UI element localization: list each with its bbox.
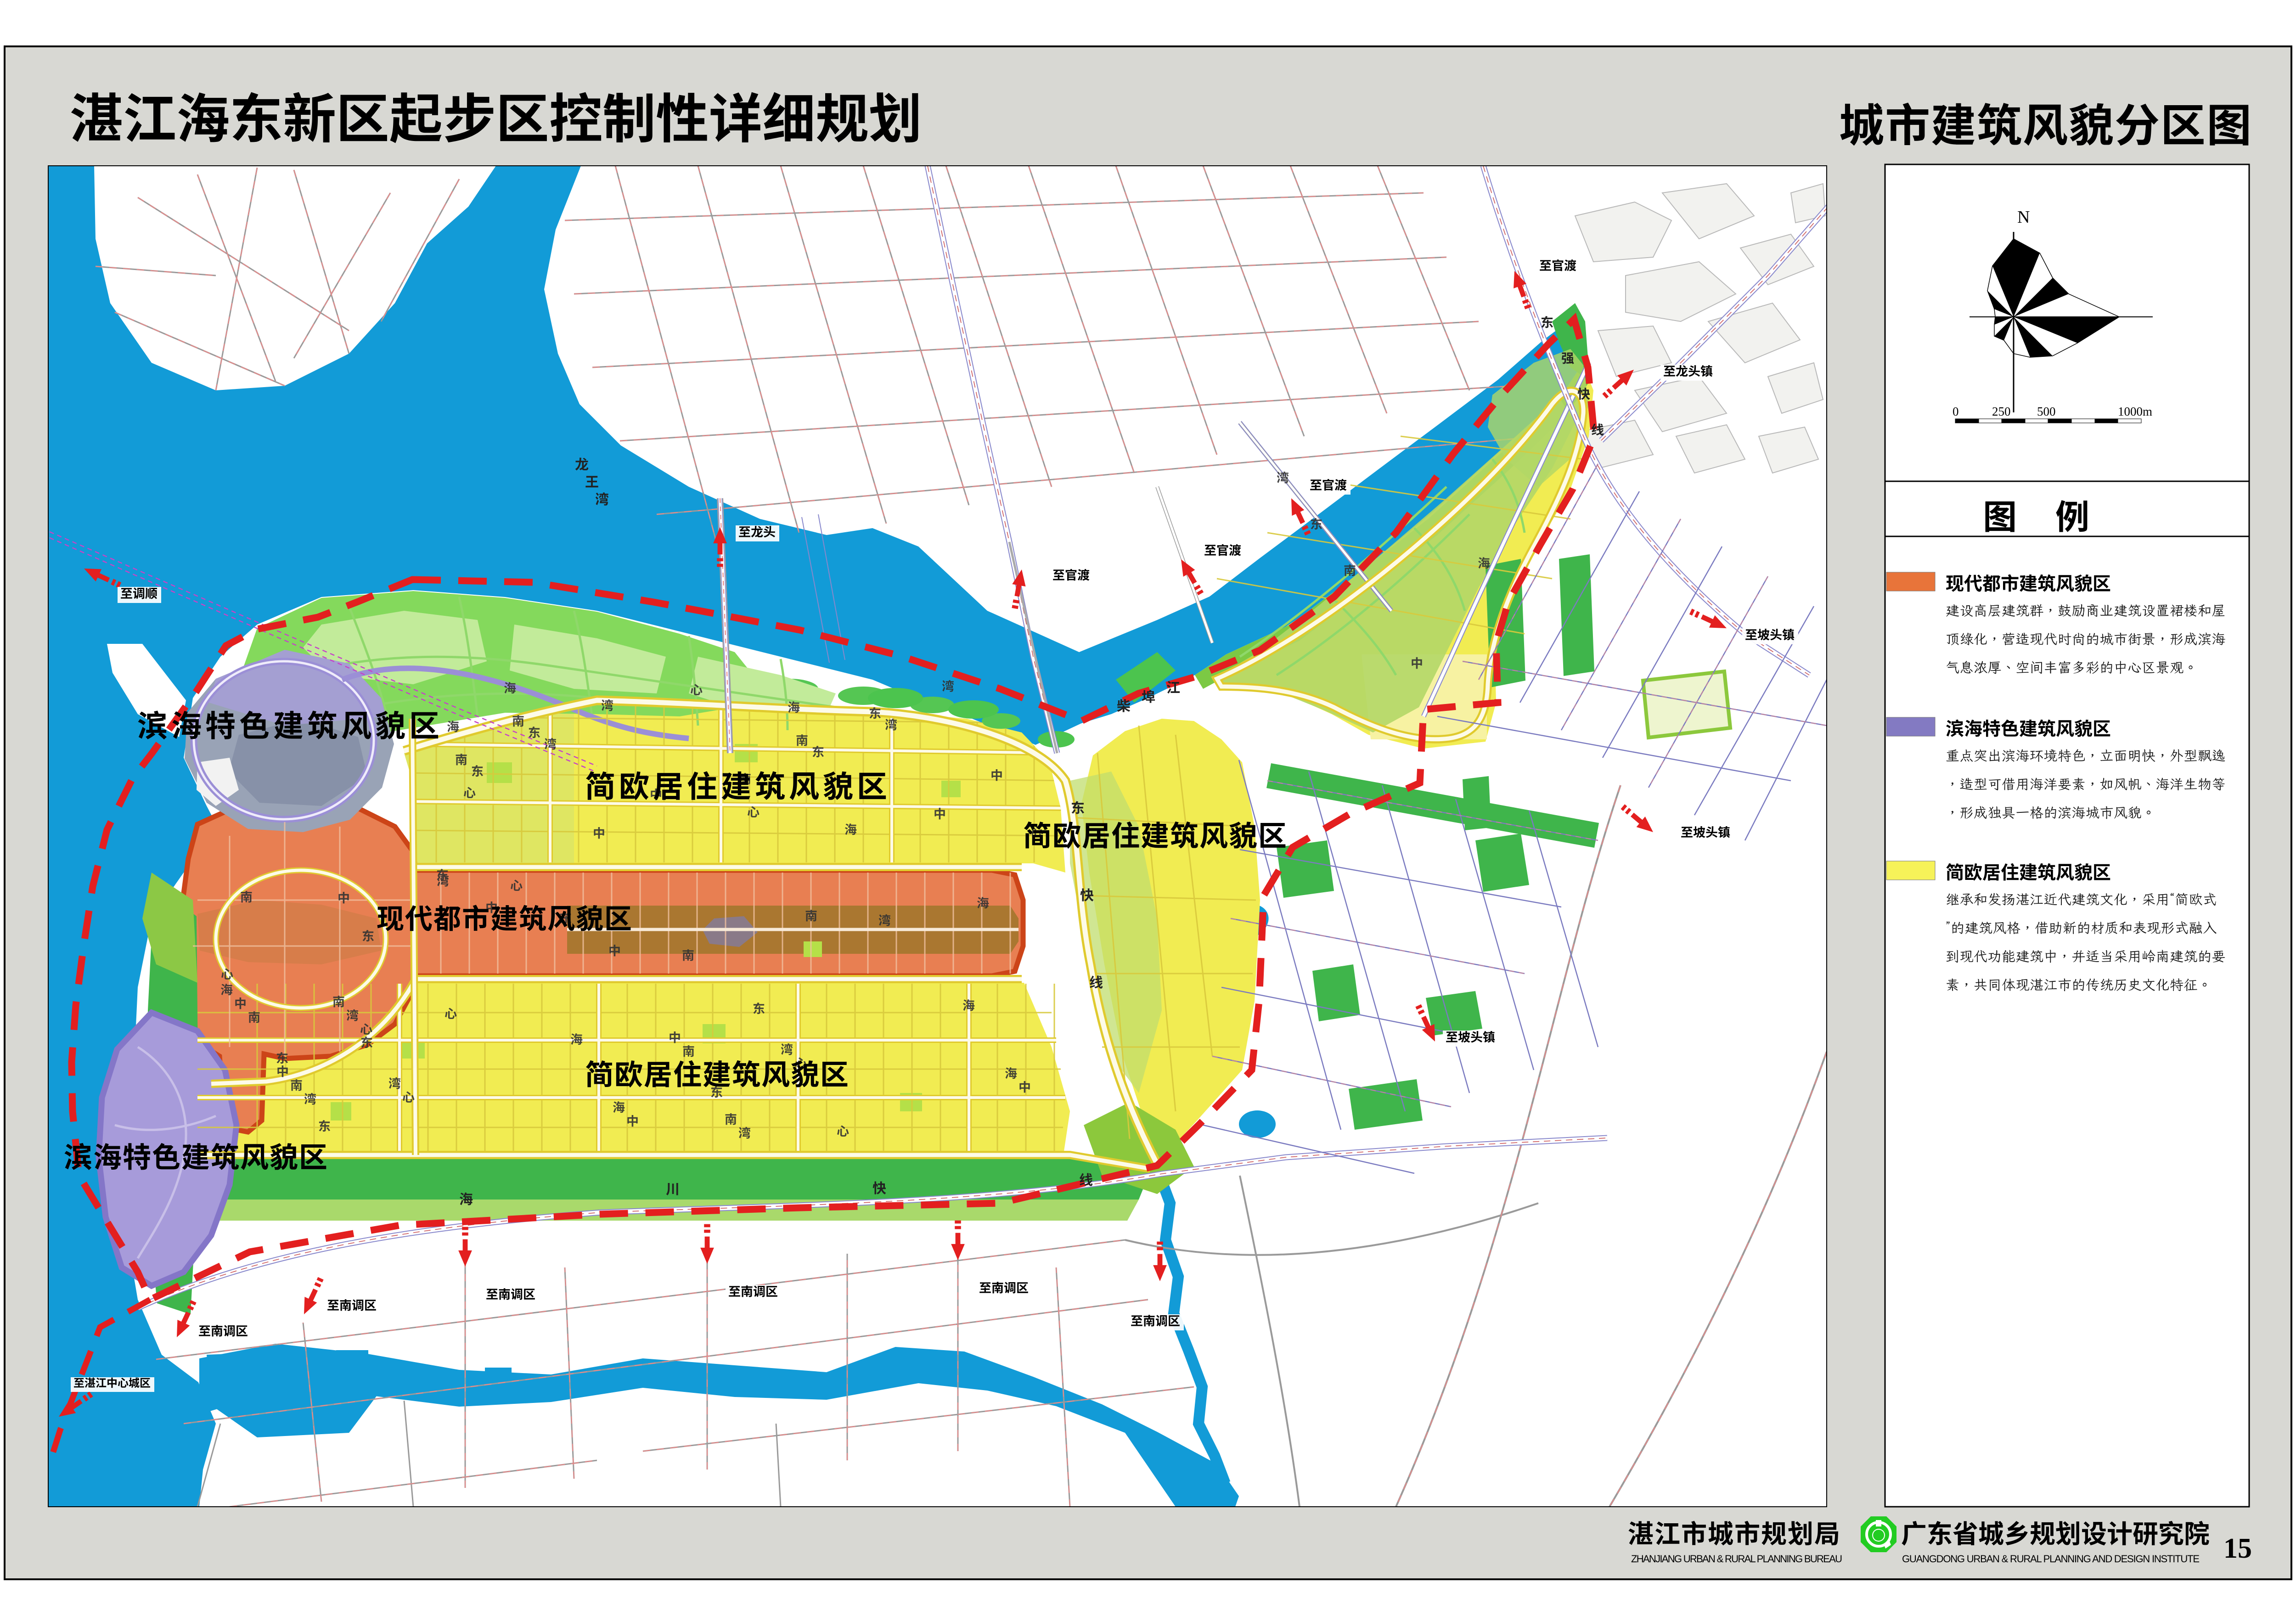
svg-text:N: N xyxy=(2017,208,2030,227)
svg-text:0: 0 xyxy=(1953,405,1959,418)
svg-text:GUANGDONG URBAN & RURAL PLANNI: GUANGDONG URBAN & RURAL PLANNING AND DES… xyxy=(1902,1553,2200,1565)
svg-text:500: 500 xyxy=(2037,405,2056,418)
svg-text:15: 15 xyxy=(2223,1533,2252,1564)
svg-text:1000m: 1000m xyxy=(2118,405,2152,418)
svg-text:250: 250 xyxy=(1992,405,2011,418)
svg-text:ZHANJIANG URBAN & RURAL PLANNI: ZHANJIANG URBAN & RURAL PLANNING BUREAU xyxy=(1631,1553,1842,1565)
